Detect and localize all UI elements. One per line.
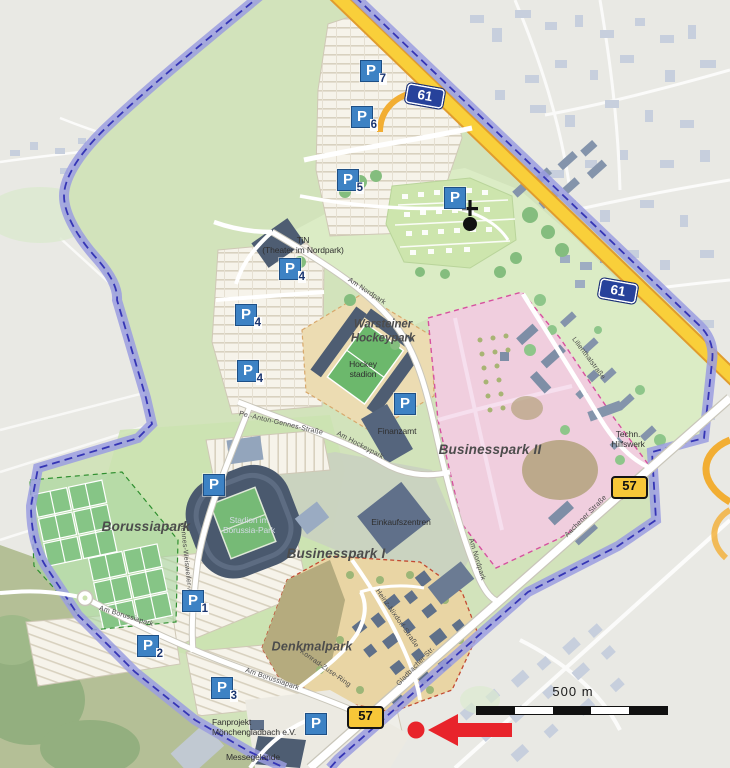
label-denkmalpark: Denkmalpark bbox=[272, 640, 353, 655]
scale-bar bbox=[476, 706, 668, 715]
parking-badge-stadium: P bbox=[203, 474, 225, 496]
label-messegelaende: Messegelande bbox=[226, 752, 280, 762]
label-fanprojekt: FanprojektMönchengladbach e.V. bbox=[212, 717, 296, 737]
label-technisches-hilfswerk: Techn.Hilfswerk bbox=[611, 429, 645, 449]
label-einkaufszentrum: Einkaufszentren bbox=[371, 517, 430, 527]
label-businesspark2: Businesspark II bbox=[439, 442, 542, 458]
parking-badge-northeast: P bbox=[444, 187, 466, 209]
parking-badge-p4-b: P4 bbox=[235, 304, 257, 326]
label-businesspark1: Businesspark I bbox=[287, 546, 386, 562]
route-57-badge-south: 57 bbox=[347, 706, 384, 729]
label-stadion-borussia-park: Stadion imBorussia-Park bbox=[223, 515, 275, 535]
parking-badge-p1: P1 bbox=[182, 590, 204, 612]
red-dot-marker bbox=[408, 722, 425, 739]
route-57-badge-east: 57 bbox=[611, 476, 648, 499]
parking-badge-finanzamt: P bbox=[394, 393, 416, 415]
parking-badge-p6: P6 bbox=[351, 106, 373, 128]
parking-badge-fanprojekt: P bbox=[305, 713, 327, 735]
parking-badge-p5: P5 bbox=[337, 169, 359, 191]
scale-label: 500 m bbox=[552, 684, 593, 699]
label-warsteiner-hockeypark: WarsteinerHockeypark bbox=[351, 318, 415, 345]
parking-badge-p4-a: P4 bbox=[279, 258, 301, 280]
parking-badge-p2: P2 bbox=[137, 635, 159, 657]
label-finanzamt: Finanzamt bbox=[378, 426, 417, 436]
parking-badge-p3: P3 bbox=[211, 677, 233, 699]
map-canvas: TiN(Theater im Nordpark) WarsteinerHocke… bbox=[0, 0, 730, 768]
parking-badge-p7: P7 bbox=[360, 60, 382, 82]
label-tin-theater: TiN(Theater im Nordpark) bbox=[262, 235, 344, 255]
label-hockey-stadion: Hockeystadion bbox=[349, 359, 377, 379]
parking-badge-p4-c: P4 bbox=[237, 360, 259, 382]
label-borussiapark: Borussiapark bbox=[102, 519, 191, 535]
